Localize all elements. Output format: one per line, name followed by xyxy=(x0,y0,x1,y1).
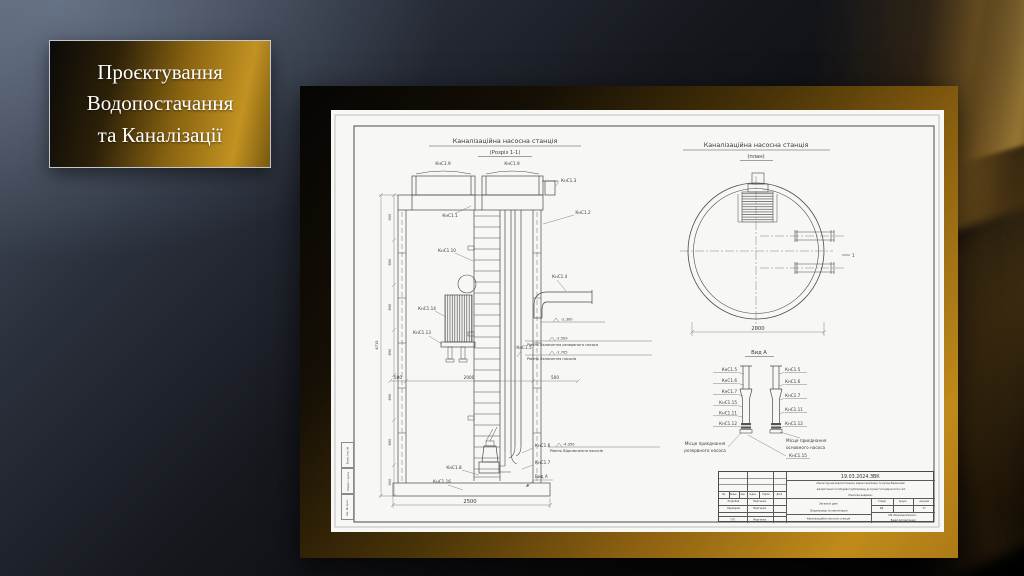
elevation-value: -4.350 xyxy=(563,443,575,447)
view-a-detail: Вид А xyxy=(740,350,782,433)
project-desc-line: використання та побудова трубопроводу до… xyxy=(816,488,904,491)
label-kns1-8: КнС1.8 xyxy=(446,465,462,470)
label-kns1-10: КнС1.10 xyxy=(438,248,456,253)
view-a-left-label: КнС1.5 xyxy=(722,367,738,372)
org-line: КіВ «Водоканалпроект» xyxy=(889,514,917,517)
col-header: Зм. xyxy=(722,493,726,496)
label-kns1-14: КнС1.14 xyxy=(418,306,436,311)
sheets-value-label: 17 xyxy=(922,507,925,510)
dim-chain: 890 xyxy=(388,393,392,401)
dim-chain: 890 xyxy=(388,348,392,356)
stamp-label: Взам. інв. № xyxy=(346,446,349,463)
view-a-left-label: КнС1.12 xyxy=(719,421,737,426)
titleblock-line xyxy=(719,478,786,479)
sheets-value: 17 xyxy=(913,505,935,512)
dim-chain: 890 xyxy=(388,258,392,266)
elevation-note: Рівень Включення насосів xyxy=(527,357,576,361)
plan-title: Каналізаційна насосна станція xyxy=(704,141,809,149)
view-a-right-label: КнС1.7 xyxy=(785,393,801,398)
titleblock-line xyxy=(719,512,786,513)
section-title: Каналізаційна насосна станція xyxy=(453,137,558,145)
view-a-caption-left: Місце приєднання xyxy=(685,441,726,446)
dim-left: 500 xyxy=(394,375,402,380)
row-name: Мартинюк xyxy=(753,518,766,521)
project-desc-line: «Реконструкція водопостачання, мереж кан… xyxy=(816,482,905,485)
view-a-left-label: КнС1.11 xyxy=(719,411,737,416)
stage-header: Стадія xyxy=(871,498,893,505)
col-header: Підпис xyxy=(762,493,770,496)
label-kns1-16: КнС1.16 xyxy=(433,479,451,484)
margin-stamp: Інв. № ориг. xyxy=(341,494,354,520)
sheets-header-label: Аркушів xyxy=(919,500,929,503)
titleblock-row-label: Розробив xyxy=(719,498,747,505)
elevation-value: -2.509 xyxy=(556,337,568,341)
view-a-title: Вид А xyxy=(751,350,767,356)
label-kns1-5: КнС1.5 xyxy=(516,345,532,350)
row-label: Розробив xyxy=(727,500,739,503)
col-header: Арк. xyxy=(740,493,745,496)
view-a-left-label: КнС1.15 xyxy=(719,400,737,405)
plan-diameter: 2000 xyxy=(751,326,764,332)
station-name-cell: Каналізаційна насосна станція xyxy=(786,514,871,523)
dim-chain: 890 xyxy=(388,438,392,446)
col-header: №док. xyxy=(749,493,756,496)
label-kns1-7: КнС1.7 xyxy=(535,460,551,465)
titleblock-line xyxy=(719,484,786,485)
label-kns1-13: КнС1.13 xyxy=(413,330,431,335)
view-a-caption-ref: КнС1.15 xyxy=(789,453,807,458)
elevation-value: -2.705 xyxy=(556,351,568,355)
row-label: Перевірив xyxy=(727,507,740,510)
elevation-note: Рівень Включення резервного насоса xyxy=(527,343,598,347)
view-a-left-label: КнС1.7 xyxy=(722,389,738,394)
stage-value-label: РД xyxy=(880,507,883,510)
label-kns1-1: КнС1.1 xyxy=(442,213,458,218)
dim-right: 500 xyxy=(551,375,559,380)
col-header: Дата xyxy=(777,493,783,496)
dim-chain: 500 xyxy=(388,478,392,486)
view-a-caption-left: резервного насоса xyxy=(684,448,726,453)
section-cut-mark: 1 xyxy=(852,253,855,258)
org-cell: Відділ Автоматизації xyxy=(871,517,935,523)
titleblock-col-header: Підпис xyxy=(759,491,773,498)
titleblock-row-name: Мартинюк xyxy=(747,516,773,523)
elevation-marks: -2.300 -2.509 Рівень Включення резервног… xyxy=(525,318,660,454)
view-a-caption-right: основного насоса xyxy=(786,445,825,450)
dim-outer-width: 2500 xyxy=(463,499,476,505)
title-block: 19.03.2024.ЗВК «Реконструкція водопостач… xyxy=(718,471,934,522)
view-a-right-label: КнС1.11 xyxy=(785,407,803,412)
titleblock-col-header: Дата xyxy=(773,491,786,498)
doc-type-line: Водопровід та каналізація xyxy=(810,509,847,512)
stamp-label: Інв. № ориг. xyxy=(346,498,349,515)
dim-chain: 500 xyxy=(388,213,392,221)
section-labels: КнС1.9 КнС1.9 КнС1.3 КнС1.1 КнС1.2 КнС1.… xyxy=(413,161,591,484)
view-a-caption-right: Місце приєднання xyxy=(786,438,827,443)
stage-header-label: Стадія xyxy=(878,500,886,503)
margin-stamp: Взам. інв. № xyxy=(341,442,354,468)
label-kns1-9: КнС1.9 xyxy=(504,161,520,166)
stamp-label: Підпис і дата xyxy=(346,471,349,490)
margin-stamp: Підпис і дата xyxy=(341,468,354,494)
section-subtitle: (Розріз 1-1) xyxy=(490,150,521,156)
view-a-right-label: КнС1.6 xyxy=(785,379,801,384)
view-a-reference: Вид А xyxy=(535,474,548,479)
project-desc-line: Новоолександрівка» xyxy=(848,494,872,497)
sheet-header-label: Аркуш xyxy=(899,500,907,503)
view-a-left-label: КнС1.6 xyxy=(722,378,738,383)
label-kns1-6: КнС1.6 xyxy=(535,443,551,448)
sheet-header: Аркуш xyxy=(893,498,913,505)
doc-number: 19.03.2024.ЗВК xyxy=(841,473,880,478)
titleblock-doc-number-cell: 19.03.2024.ЗВК xyxy=(786,472,935,480)
label-kns1-4: КнС1.4 xyxy=(552,274,568,279)
label-kns1-2: КнС1.2 xyxy=(575,210,591,215)
view-a-right-label: КнС1.12 xyxy=(785,421,803,426)
elevation-value: -2.300 xyxy=(561,318,573,322)
row-name: Мартинюк xyxy=(753,500,766,503)
titleblock-col-header: Кільк. xyxy=(729,491,739,498)
station-name: Каналізаційна насосна станція xyxy=(807,517,850,520)
plan-subtitle: (план) xyxy=(747,154,764,160)
titleblock-row-name: Мартинюк xyxy=(747,505,773,512)
titleblock-col-header: Арк. xyxy=(739,491,747,498)
sheets-header: Аркушів xyxy=(913,498,935,505)
doc-type-line: Загальні дані xyxy=(819,502,838,505)
dim-inner-width: 2000 xyxy=(464,375,475,380)
titleblock-row-label: ГІП xyxy=(719,516,747,523)
dim-overall-height: 4715 xyxy=(375,340,379,349)
dim-chain: 890 xyxy=(388,303,392,311)
row-name: Мартинюк xyxy=(753,507,766,510)
plan-dimension: 2000 xyxy=(690,322,826,336)
label-kns1-9: КнС1.9 xyxy=(435,161,451,166)
plan-view: Каналізаційна насосна станція (план) 1 xyxy=(680,141,855,330)
label-kns1-3: КнС1.3 xyxy=(561,178,577,183)
titleblock-col-header: №док. xyxy=(747,491,759,498)
titleblock-row-label: Перевірив xyxy=(719,505,747,512)
view-a-right-label: КнС1.5 xyxy=(785,367,801,372)
elevation-note: Рівень Відключення насосів xyxy=(550,449,603,453)
row-label: ГІП xyxy=(731,518,735,521)
titleblock-mid: Водопровід та каналізація xyxy=(786,506,871,514)
col-header: Кільк. xyxy=(730,493,737,496)
slide: Проєктування Водопостачання та Каналізац… xyxy=(0,0,1024,576)
titleblock-row-name: Мартинюк xyxy=(747,498,773,505)
org-line: Відділ Автоматизації xyxy=(891,519,916,522)
stage-value: РД xyxy=(871,505,893,512)
titleblock-col-header: Зм. xyxy=(719,491,729,498)
sheet-frame xyxy=(335,115,939,527)
